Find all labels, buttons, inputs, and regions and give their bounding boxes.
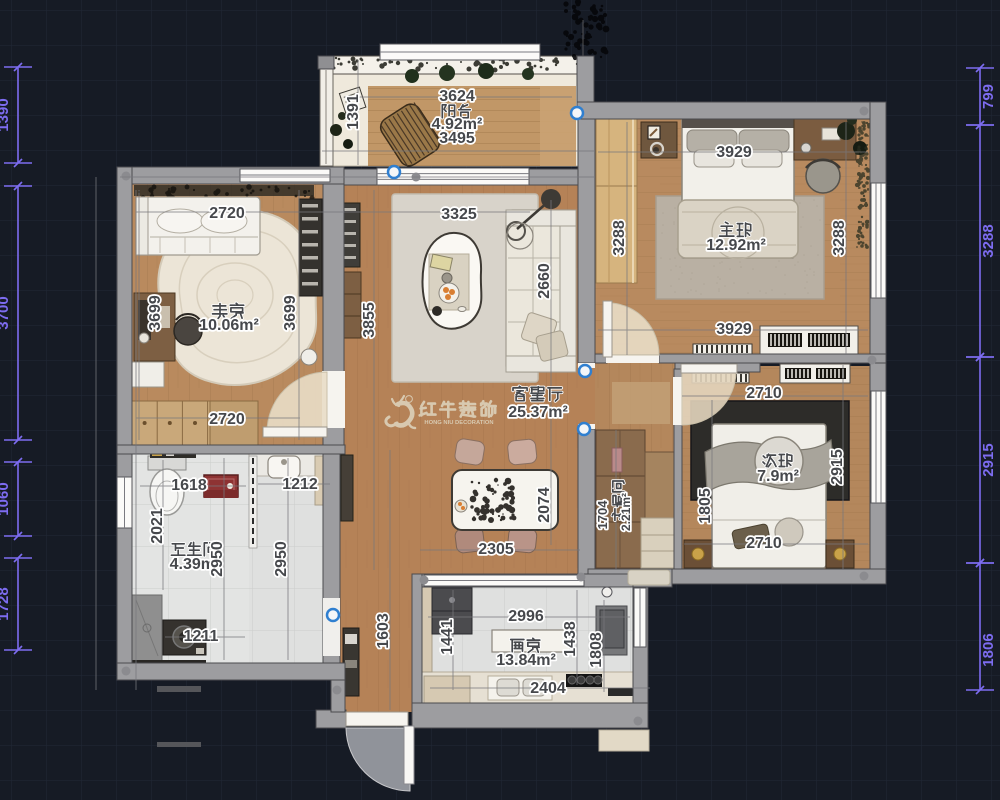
svg-text:2720: 2720 [209, 411, 245, 428]
svg-text:2950: 2950 [209, 541, 226, 577]
svg-text:12.92m²: 12.92m² [706, 237, 766, 254]
svg-text:2950: 2950 [273, 541, 290, 577]
svg-text:1808: 1808 [588, 632, 605, 668]
svg-text:1603: 1603 [375, 613, 392, 649]
svg-text:25.37m²: 25.37m² [508, 404, 568, 421]
svg-text:7.9m²: 7.9m² [757, 468, 799, 485]
svg-text:1806: 1806 [980, 633, 997, 666]
svg-text:3288: 3288 [611, 220, 628, 256]
svg-text:1390: 1390 [0, 98, 12, 131]
svg-text:3495: 3495 [439, 130, 475, 147]
svg-text:1060: 1060 [0, 482, 12, 515]
svg-text:1704: 1704 [595, 500, 610, 530]
svg-text:1211: 1211 [184, 628, 219, 645]
svg-text:3325: 3325 [441, 206, 477, 223]
svg-text:3855: 3855 [361, 302, 378, 338]
svg-text:1212: 1212 [282, 476, 318, 493]
svg-text:2021: 2021 [149, 508, 166, 544]
svg-text:2074: 2074 [536, 487, 553, 523]
svg-text:2305: 2305 [478, 541, 514, 558]
svg-text:1728: 1728 [0, 587, 12, 620]
svg-text:2710: 2710 [746, 535, 782, 552]
svg-text:3700: 3700 [0, 296, 12, 329]
svg-text:1438: 1438 [562, 621, 579, 657]
svg-text:3929: 3929 [716, 321, 752, 338]
svg-text:3929: 3929 [716, 144, 752, 161]
svg-text:3288: 3288 [980, 224, 997, 257]
svg-text:2915: 2915 [980, 443, 997, 476]
svg-text:10.06m²: 10.06m² [199, 317, 259, 334]
svg-text:2.21m²: 2.21m² [619, 493, 633, 531]
svg-text:2404: 2404 [530, 680, 566, 697]
svg-text:799: 799 [980, 84, 997, 109]
svg-text:3624: 3624 [439, 88, 475, 105]
svg-text:2660: 2660 [536, 263, 553, 299]
svg-text:3699: 3699 [147, 295, 164, 331]
svg-text:3699: 3699 [282, 295, 299, 331]
svg-text:13.84m²: 13.84m² [496, 652, 556, 669]
svg-text:1805: 1805 [697, 488, 714, 524]
svg-text:3288: 3288 [831, 220, 848, 256]
svg-text:1441: 1441 [439, 619, 456, 655]
svg-text:2996: 2996 [508, 608, 544, 625]
svg-text:1391: 1391 [345, 94, 362, 130]
svg-text:2915: 2915 [829, 449, 846, 485]
svg-text:1618: 1618 [171, 477, 207, 494]
svg-text:2710: 2710 [746, 385, 782, 402]
svg-text:HONG NIU DECORATION: HONG NIU DECORATION [424, 420, 493, 426]
svg-text:2720: 2720 [209, 205, 245, 222]
